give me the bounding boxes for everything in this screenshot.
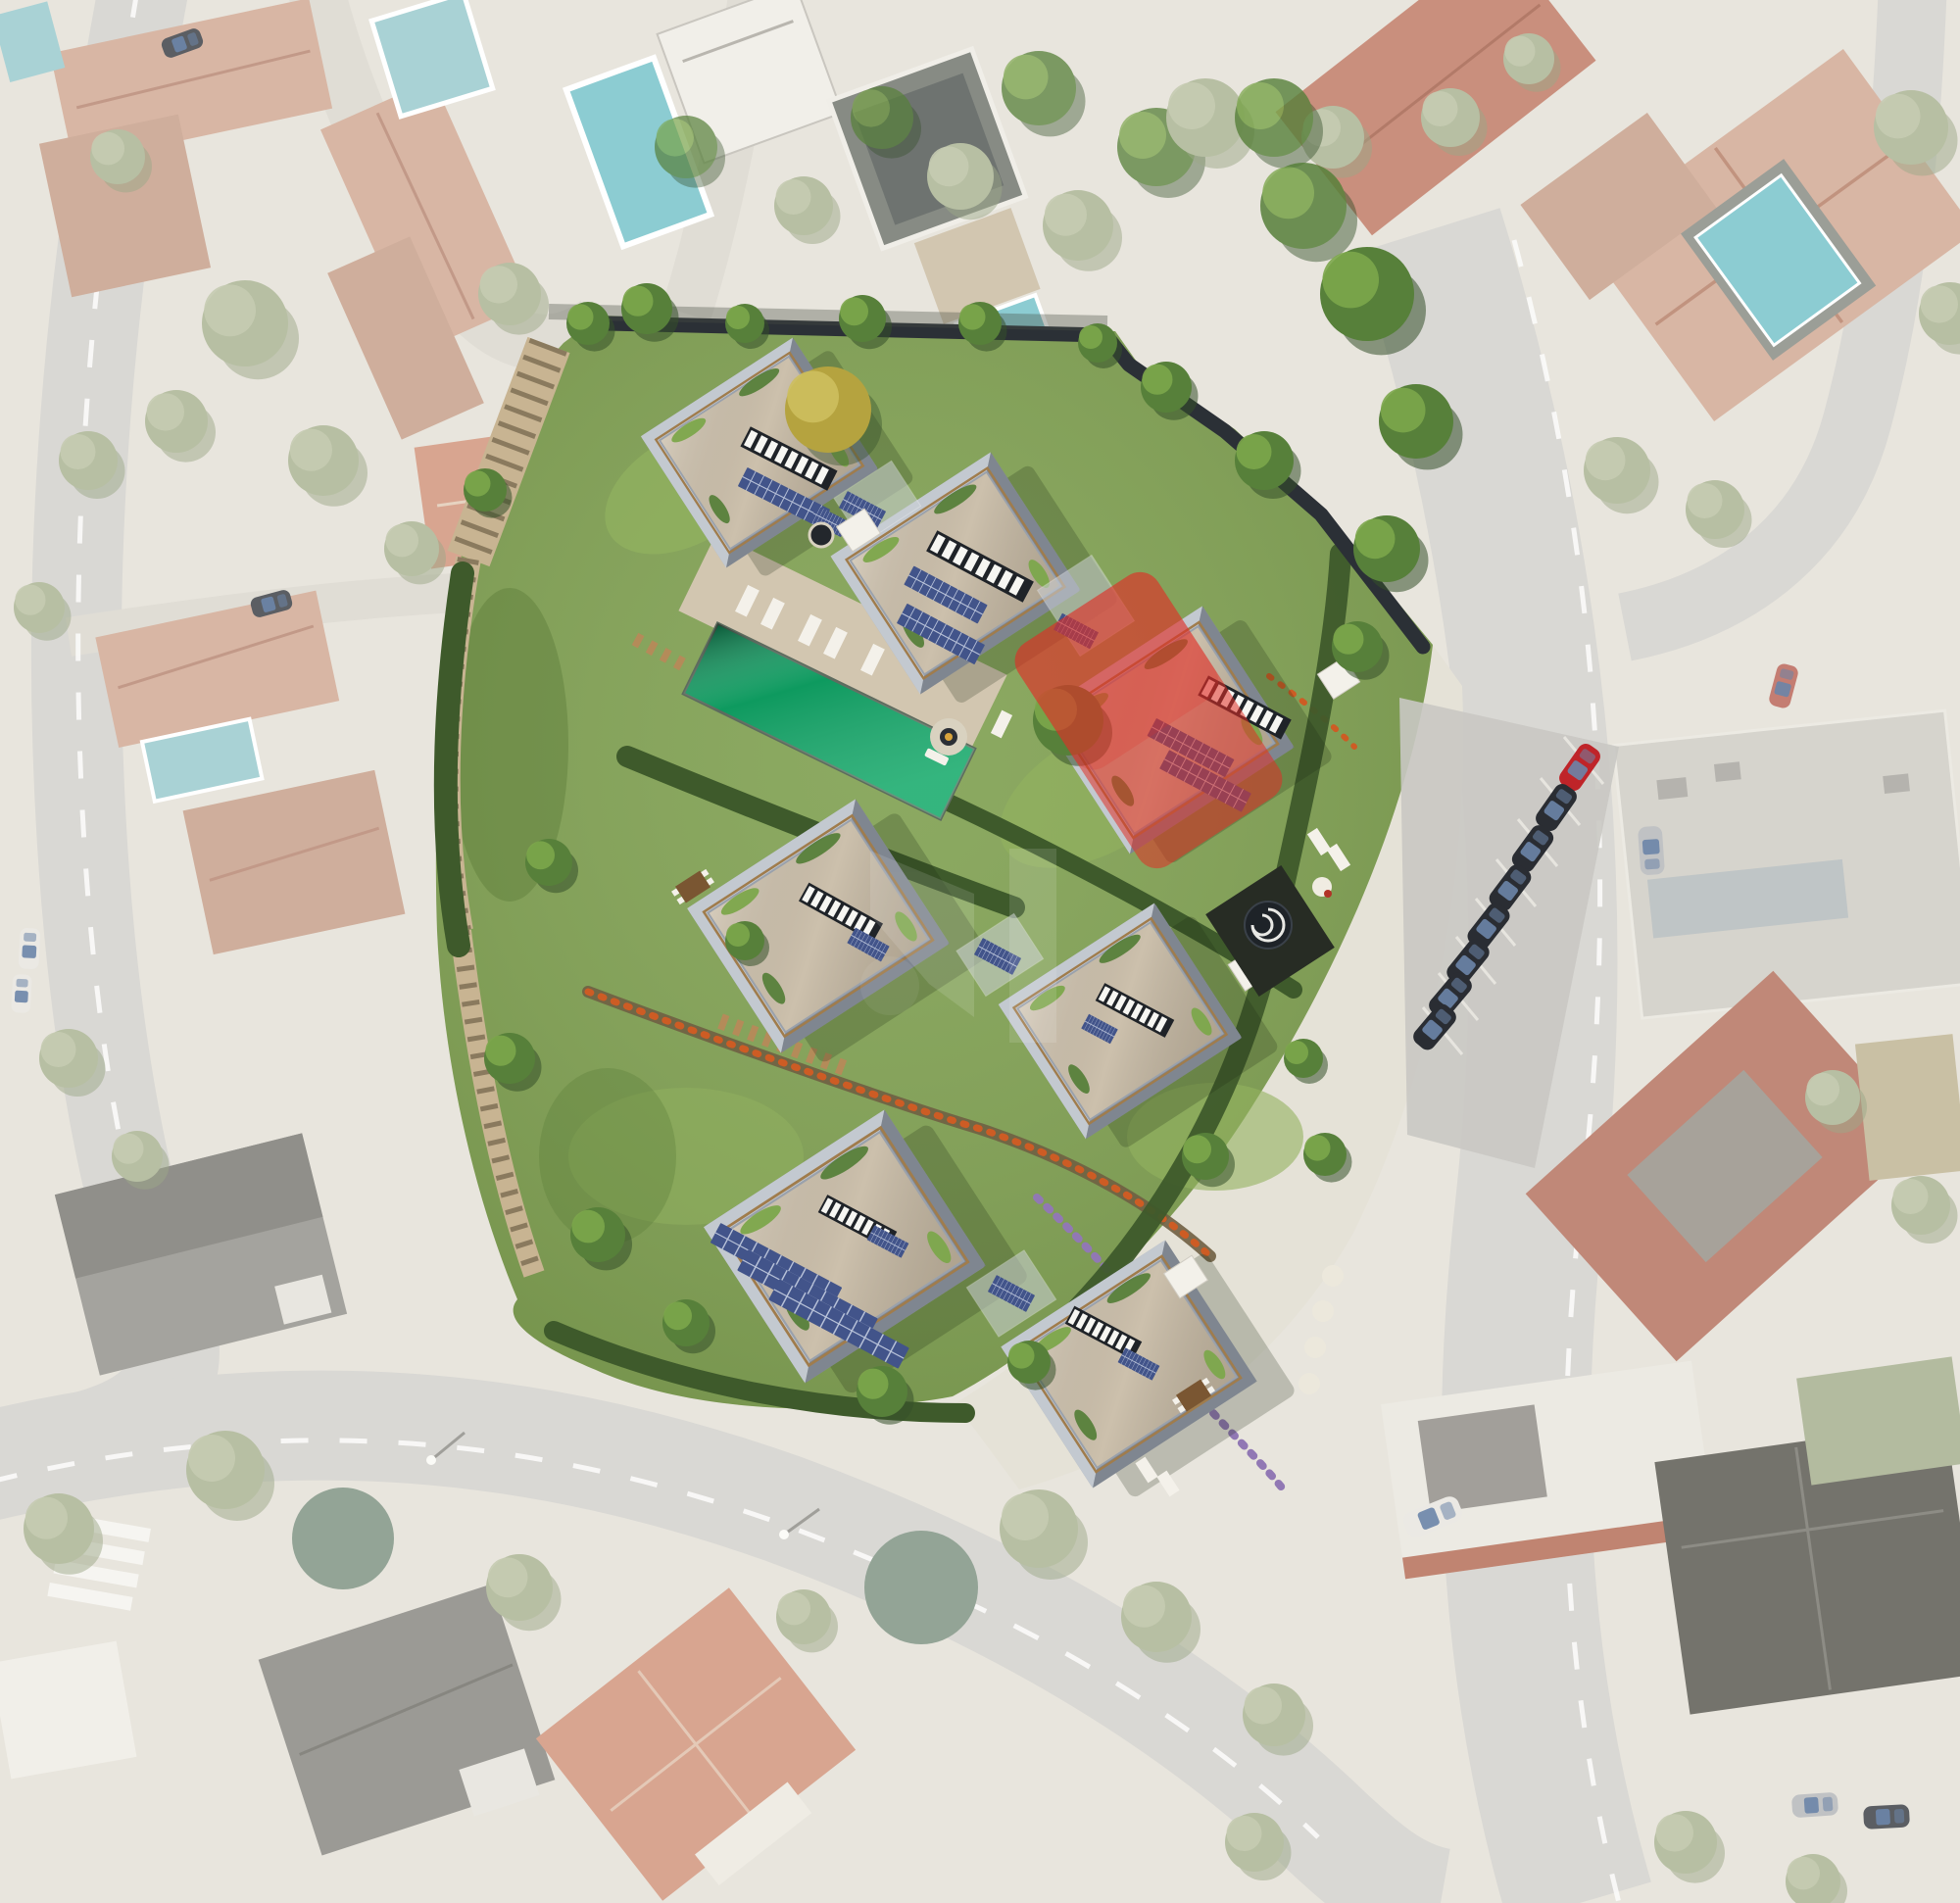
playground: [1855, 1034, 1960, 1181]
site-plan-svg: [0, 0, 1960, 1903]
watermark-bar: [1009, 849, 1056, 1043]
building-east-flat: [1613, 710, 1960, 1018]
watermark-dot: [860, 956, 919, 1015]
large-sage-tree: [292, 1488, 394, 1589]
fire-bowl: [809, 523, 833, 547]
aerial-masterplan-view: [0, 0, 1960, 1903]
house-sw-white: [0, 1641, 136, 1780]
garden-se: [1796, 1356, 1960, 1485]
